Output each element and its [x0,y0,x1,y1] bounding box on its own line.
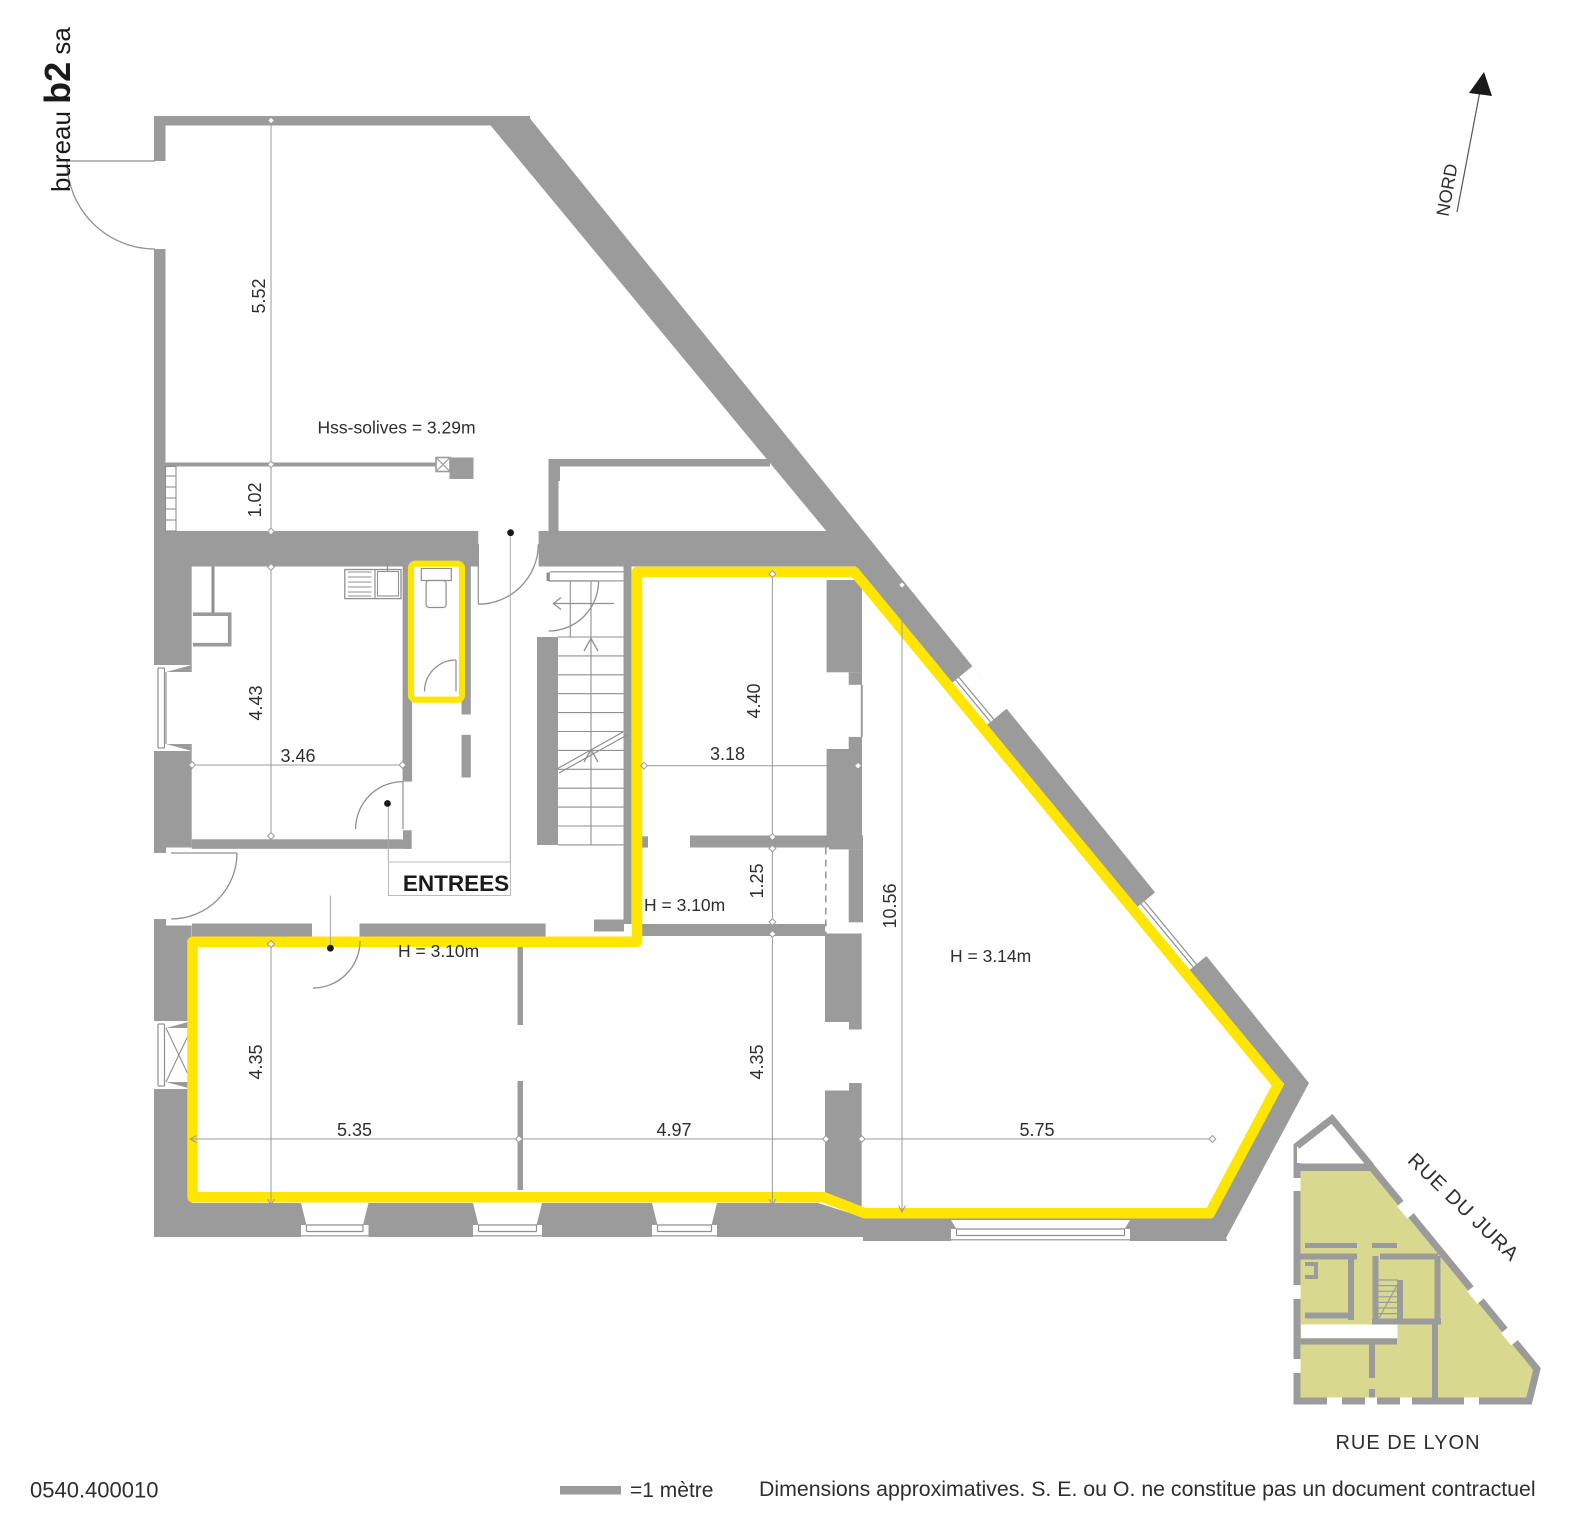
svg-text:10.56: 10.56 [880,883,900,928]
svg-text:1.25: 1.25 [747,863,767,898]
svg-text:5.52: 5.52 [249,278,269,313]
svg-text:3.46: 3.46 [280,746,315,766]
svg-text:4.35: 4.35 [747,1044,767,1079]
svg-text:4.43: 4.43 [246,685,266,720]
svg-text:bureau b2 sa: bureau b2 sa [37,27,78,192]
svg-text:Dimensions approximatives. S.: Dimensions approximatives. S. E. ou O. n… [759,1477,1536,1501]
svg-text:5.35: 5.35 [337,1120,372,1140]
svg-text:H = 3.14m: H = 3.14m [950,946,1031,966]
svg-text:RUE DE LYON: RUE DE LYON [1335,1432,1480,1454]
svg-text:H = 3.10m: H = 3.10m [644,895,725,915]
svg-text:1.02: 1.02 [245,482,265,517]
svg-text:4.97: 4.97 [656,1120,691,1140]
svg-text:Hss-solives = 3.29m: Hss-solives = 3.29m [318,418,476,438]
svg-text:3.18: 3.18 [710,744,745,764]
svg-text:ENTREES: ENTREES [403,871,509,896]
svg-text:H = 3.10m: H = 3.10m [398,941,479,961]
svg-text:4.35: 4.35 [246,1044,266,1079]
svg-text:4.40: 4.40 [744,683,764,718]
svg-text:5.75: 5.75 [1019,1120,1054,1140]
svg-text:=1 mètre: =1 mètre [630,1479,713,1502]
svg-text:0540.400010: 0540.400010 [30,1478,158,1503]
